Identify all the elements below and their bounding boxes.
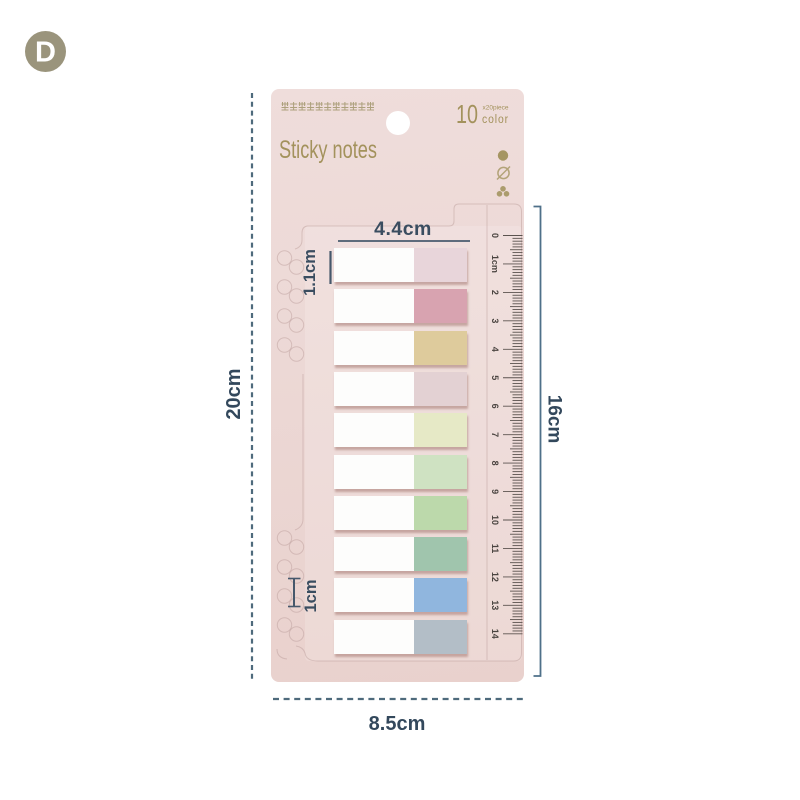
svg-text:8: 8	[490, 461, 500, 466]
svg-text:Sticky notes: Sticky notes	[279, 136, 377, 164]
svg-text:10: 10	[456, 99, 478, 129]
svg-text:1cm: 1cm	[302, 579, 320, 612]
svg-text:3: 3	[490, 318, 500, 323]
svg-text:color: color	[482, 114, 509, 126]
svg-text:5: 5	[490, 375, 500, 380]
svg-text:16cm: 16cm	[543, 395, 564, 444]
svg-text:7: 7	[490, 432, 500, 437]
svg-text:11: 11	[490, 544, 500, 554]
svg-text:4.4cm: 4.4cm	[374, 218, 432, 240]
svg-text:D: D	[35, 37, 56, 69]
svg-text:2: 2	[490, 290, 500, 295]
svg-text:x20piece: x20piece	[483, 105, 509, 112]
svg-text:10: 10	[490, 515, 500, 525]
svg-text:0: 0	[490, 233, 500, 238]
svg-text:9: 9	[490, 489, 500, 494]
svg-text:13: 13	[490, 600, 500, 610]
svg-text:12: 12	[490, 572, 500, 582]
svg-text:8.5cm: 8.5cm	[369, 713, 426, 735]
svg-text:4: 4	[490, 347, 500, 352]
svg-text:6: 6	[490, 404, 500, 409]
svg-text:1cm: 1cm	[490, 255, 500, 273]
svg-text:1.1cm: 1.1cm	[301, 249, 319, 296]
svg-text:20cm: 20cm	[223, 368, 245, 419]
svg-text:14: 14	[490, 629, 500, 639]
